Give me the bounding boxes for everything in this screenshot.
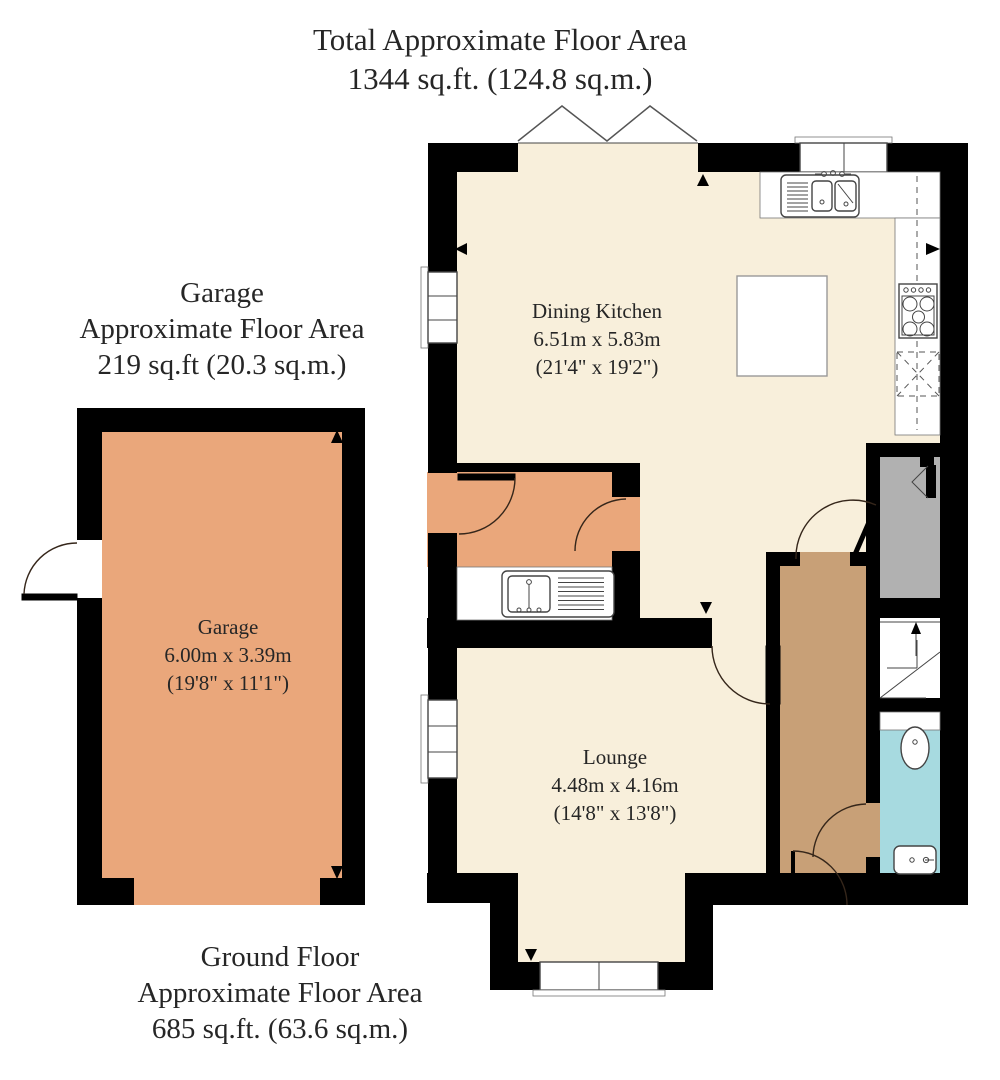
wall-hallway-top-a <box>780 552 800 566</box>
wall-lounge-top <box>427 618 712 648</box>
wc-door-gap <box>866 803 880 857</box>
hallway-top-door-gap <box>800 552 850 566</box>
ground-floor-label: Ground Floor Approximate Floor Area 685 … <box>137 941 422 1045</box>
floorplan-drawing: Total Approximate Floor Area 1344 sq.ft.… <box>0 0 1000 1080</box>
garage-room-metric: 6.00m x 3.39m <box>164 643 291 667</box>
wall-right <box>940 143 968 905</box>
wall-top-mid <box>698 143 800 172</box>
dining-kitchen-label: Dining Kitchen 6.51m x 5.83m (21'4" x 19… <box>532 299 663 379</box>
utility-door-gap <box>612 497 640 551</box>
garage-building: Garage 6.00m x 3.39m (19'8" x 11'1") <box>22 408 365 905</box>
wall-hallway-left <box>766 552 780 873</box>
garage-area-line2: Approximate Floor Area <box>79 313 364 345</box>
window-kitchen-top <box>795 137 892 172</box>
kitchen-sink-icon <box>781 171 859 217</box>
toilet-icon <box>901 727 929 769</box>
lounge-door-leaf <box>766 646 780 704</box>
wall-hallway-top-b <box>850 552 866 566</box>
basin-icon <box>894 846 936 874</box>
wall-utility-right-stub <box>612 463 640 497</box>
lounge-imperial: (14'8" x 13'8") <box>554 801 677 825</box>
garage-side-door-opening <box>77 540 102 598</box>
dining-kitchen-name: Dining Kitchen <box>532 299 663 323</box>
wall-utility-top <box>457 463 612 472</box>
window-lounge-left <box>421 695 457 783</box>
wall-utility-right-lower <box>612 551 640 620</box>
utility-side-door-leaf <box>458 474 515 480</box>
window-dk-left <box>421 267 457 348</box>
garage-room-imperial: (19'8" x 11'1") <box>167 671 289 695</box>
wall-bottom-right <box>685 873 968 905</box>
lounge-door-opening <box>712 618 766 648</box>
wall-store-notch-a <box>920 453 934 467</box>
wall-left-upper <box>428 143 457 272</box>
garage-room-name: Garage <box>198 615 259 639</box>
dining-kitchen-top-opening <box>518 143 698 172</box>
garage-area-label: Garage Approximate Floor Area 219 sq.ft … <box>79 277 364 381</box>
wall-wc-left-upper <box>866 605 880 803</box>
wall-left-bottom <box>428 778 457 873</box>
wall-left-mid <box>428 343 457 473</box>
garage-side-door-swing <box>24 543 77 594</box>
ground-floor-line1: Ground Floor <box>201 941 360 973</box>
floorplan-page: Total Approximate Floor Area 1344 sq.ft.… <box>0 0 1000 1080</box>
lounge-bay-floor <box>518 873 685 962</box>
roof-gable-lines <box>518 106 697 141</box>
main-house: Dining Kitchen 6.51m x 5.83m (21'4" x 19… <box>421 106 968 996</box>
total-area-label: Total Approximate Floor Area 1344 sq.ft.… <box>313 22 687 96</box>
garage-door-opening <box>134 878 320 905</box>
wall-wc-left-lower <box>866 857 880 873</box>
lounge-metric: 4.48m x 4.16m <box>551 773 678 797</box>
window-lounge-bay <box>533 962 665 996</box>
wall-store-notch-b <box>926 465 936 498</box>
wc-shelf <box>880 712 940 730</box>
garage-side-door-leaf <box>22 594 77 600</box>
lounge-name: Lounge <box>583 745 647 769</box>
total-area-line1: Total Approximate Floor Area <box>313 22 687 57</box>
total-area-line2: 1344 sq.ft. (124.8 sq.m.) <box>348 61 653 96</box>
garage-area-line1: Garage <box>180 277 264 309</box>
garage-area-line3: 219 sq.ft (20.3 sq.m.) <box>98 349 347 381</box>
ground-floor-line3: 685 sq.ft. (63.6 sq.m.) <box>152 1013 408 1045</box>
dining-kitchen-imperial: (21'4" x 19'2") <box>536 355 659 379</box>
dining-kitchen-metric: 6.51m x 5.83m <box>533 327 660 351</box>
utility-sink-icon <box>502 571 614 617</box>
stairs-floor <box>880 618 940 698</box>
wall-left-lower <box>428 533 457 700</box>
hob-icon <box>899 284 937 338</box>
ground-floor-line2: Approximate Floor Area <box>137 977 422 1009</box>
kitchen-island <box>737 276 827 376</box>
utility-side-door-opening <box>428 473 457 533</box>
